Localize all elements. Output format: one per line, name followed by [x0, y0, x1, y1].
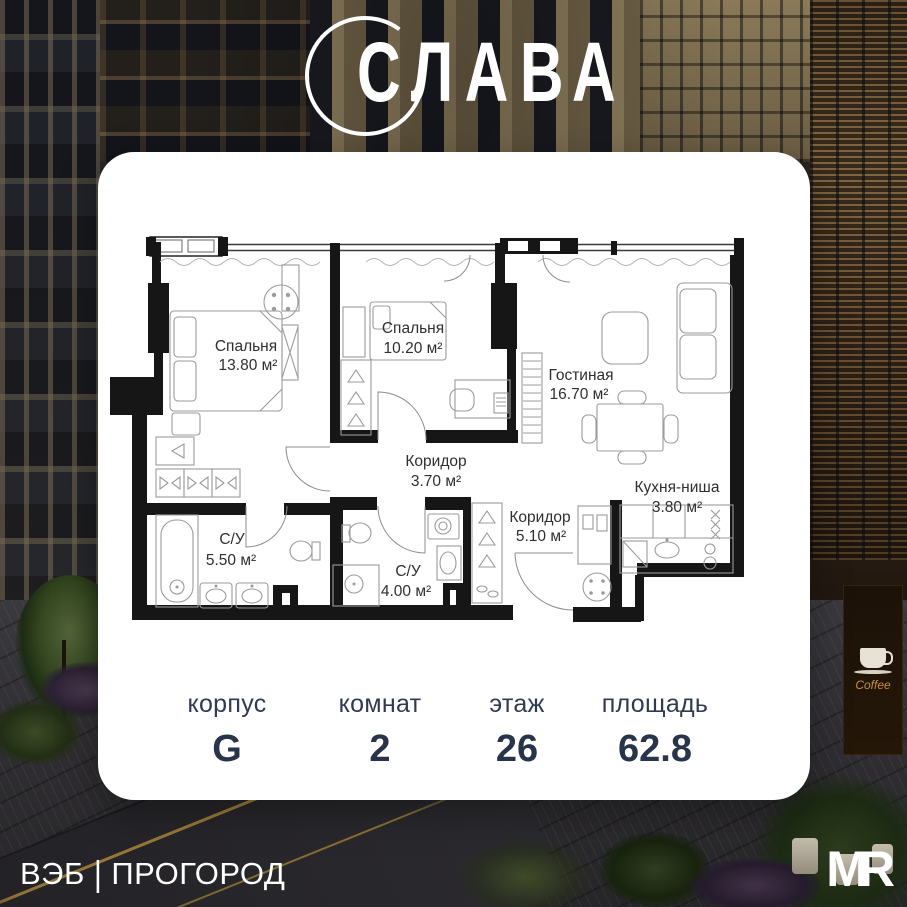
round-table [264, 285, 298, 319]
rug [602, 312, 648, 364]
mr-group-logo: MR [826, 840, 895, 898]
room-area-kitchen: 3.80 м² [652, 499, 702, 516]
window-wall [146, 245, 742, 251]
cabinet [343, 307, 365, 357]
info-building: корпус G [187, 690, 266, 771]
brand-logo-text: СЛАВА [357, 30, 627, 114]
room-area-corridor-1: 3.70 м² [411, 473, 461, 490]
room-label-kitchen: Кухня-ниша [635, 479, 720, 496]
room-area-bathroom-2: 4.00 м² [381, 583, 431, 600]
desk-chair [450, 389, 474, 411]
chair [618, 451, 646, 464]
chair [582, 415, 596, 443]
room-label-corridor-1: Коридор [405, 453, 466, 470]
room-label-bathroom-2: С/У [395, 563, 421, 580]
floorplan-card: Спальня 13.80 м² Спальня 10.20 м² Гостин… [98, 152, 810, 800]
sofa [677, 283, 732, 393]
poster: Coffee СЛАВА [0, 0, 907, 907]
desk [455, 380, 510, 418]
info-rooms-label: комнат [339, 690, 422, 719]
chair [664, 415, 678, 443]
developer-logo-progorod: ПРОГОРОД [111, 856, 285, 891]
wardrobe-hangers [341, 360, 371, 435]
room-area-bedroom-1: 13.80 м² [219, 357, 278, 374]
stove-burner [705, 544, 715, 554]
info-floor: этаж 26 [489, 690, 544, 771]
info-rooms-value: 2 [339, 728, 422, 771]
room-labels: Спальня 13.80 м² Спальня 10.20 м² Гостин… [206, 320, 720, 600]
kitchen-sink [655, 542, 679, 558]
floor-plan: Спальня 13.80 м² Спальня 10.20 м² Гостин… [110, 225, 765, 627]
closet [156, 437, 194, 465]
radiator [522, 353, 542, 443]
info-floor-value: 26 [489, 728, 544, 771]
info-building-label: корпус [187, 690, 266, 719]
developer-logo-separator: | [94, 853, 103, 894]
room-label-bedroom-2: Спальня [382, 320, 444, 337]
chair [618, 391, 646, 404]
info-area-value: 62.8 [602, 728, 709, 771]
room-area-bedroom-2: 10.20 м² [384, 340, 443, 357]
developer-logo-veb: ВЭБ [20, 856, 85, 891]
developer-logo: ВЭБ|ПРОГОРОД [20, 856, 285, 892]
mr-logo-text: MR [826, 841, 886, 897]
dining-table [597, 404, 663, 451]
info-area: площадь 62.8 [602, 690, 709, 771]
toilet [312, 542, 320, 560]
bench [172, 413, 200, 435]
room-area-corridor-2: 5.10 м² [516, 528, 566, 545]
room-label-corridor-2: Коридор [509, 509, 570, 526]
sink [437, 546, 461, 580]
small-round-table [583, 573, 611, 601]
info-building-value: G [187, 728, 266, 771]
window-sash [188, 240, 214, 252]
room-label-bathroom-1: С/У [219, 531, 245, 548]
curtain-lines [160, 259, 730, 266]
info-area-label: площадь [602, 690, 709, 719]
brand-logo: СЛАВА [0, 0, 907, 160]
monitor [494, 393, 508, 413]
info-floor-label: этаж [489, 690, 544, 719]
info-rooms: комнат 2 [339, 690, 422, 771]
room-label-bedroom-1: Спальня [215, 338, 277, 355]
room-area-bathroom-1: 5.50 м² [206, 552, 256, 569]
room-area-living: 16.70 м² [550, 386, 609, 403]
room-label-living: Гостиная [548, 367, 613, 384]
